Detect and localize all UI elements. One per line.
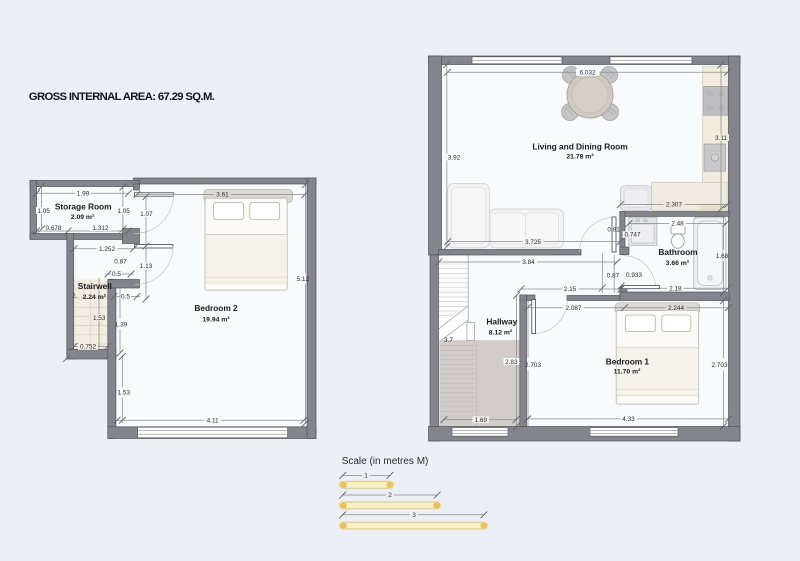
- svg-text:Storage Room: Storage Room: [55, 202, 112, 212]
- svg-text:0.5: 0.5: [112, 271, 121, 278]
- svg-text:Hallway: Hallway: [486, 317, 517, 327]
- svg-text:Bedroom 2: Bedroom 2: [194, 303, 238, 313]
- svg-text:4.33: 4.33: [622, 416, 635, 423]
- svg-text:19.94 m²: 19.94 m²: [202, 316, 230, 323]
- svg-text:0.752: 0.752: [80, 344, 96, 351]
- svg-text:0.81: 0.81: [607, 227, 620, 234]
- svg-text:0.678: 0.678: [46, 225, 62, 232]
- svg-text:1.312: 1.312: [93, 225, 109, 232]
- svg-text:1.07: 1.07: [140, 211, 153, 218]
- svg-text:2.: 2.: [72, 293, 78, 300]
- svg-text:0.5: 0.5: [121, 294, 130, 301]
- svg-text:11.70 m²: 11.70 m²: [614, 369, 642, 376]
- svg-text:4.11: 4.11: [207, 418, 219, 425]
- svg-text:1.39: 1.39: [115, 321, 128, 328]
- svg-text:8.12 m²: 8.12 m²: [489, 330, 513, 337]
- svg-text:1.99: 1.99: [77, 191, 90, 198]
- svg-text:2.83: 2.83: [505, 359, 518, 366]
- svg-text:Stairwell: Stairwell: [78, 281, 112, 291]
- svg-text:2.09 m²: 2.09 m²: [71, 214, 95, 221]
- svg-text:3.7: 3.7: [444, 337, 453, 344]
- svg-text:0.87: 0.87: [114, 258, 127, 265]
- svg-text:1.53: 1.53: [118, 389, 131, 396]
- svg-text:3.725: 3.725: [525, 239, 541, 246]
- svg-text:2.48: 2.48: [671, 221, 684, 228]
- svg-text:2.15: 2.15: [564, 286, 577, 293]
- svg-text:3.61: 3.61: [216, 192, 229, 199]
- svg-text:2.703: 2.703: [712, 362, 728, 369]
- svg-text:2.087: 2.087: [566, 305, 582, 312]
- svg-text:Bedroom 1: Bedroom 1: [606, 357, 650, 367]
- svg-text:5.12: 5.12: [297, 276, 310, 283]
- svg-text:Bathroom: Bathroom: [658, 247, 697, 257]
- svg-text:2.244: 2.244: [668, 305, 684, 312]
- svg-text:3.92: 3.92: [448, 155, 461, 162]
- svg-text:1.05: 1.05: [37, 208, 50, 215]
- svg-text:1.13: 1.13: [140, 263, 153, 270]
- svg-text:1.68: 1.68: [716, 253, 729, 260]
- svg-text:1.53: 1.53: [93, 315, 106, 322]
- svg-text:Scale (in metres M): Scale (in metres M): [342, 456, 429, 467]
- svg-text:2.307: 2.307: [666, 202, 682, 209]
- svg-text:1.252: 1.252: [99, 246, 115, 253]
- svg-text:0.747: 0.747: [625, 232, 641, 239]
- svg-text:2: 2: [388, 492, 392, 499]
- svg-text:3: 3: [412, 512, 416, 519]
- svg-text:0.87: 0.87: [607, 272, 620, 279]
- svg-text:2.24 m²: 2.24 m²: [83, 294, 107, 301]
- svg-text:6.032: 6.032: [580, 70, 596, 77]
- svg-text:3.66 m²: 3.66 m²: [666, 260, 690, 267]
- svg-text:3.84: 3.84: [522, 259, 535, 266]
- svg-text:1.05: 1.05: [117, 208, 130, 215]
- svg-text:2.703: 2.703: [525, 362, 541, 369]
- svg-text:GROSS INTERNAL AREA: 67.29 SQ.: GROSS INTERNAL AREA: 67.29 SQ.M.: [29, 91, 215, 103]
- svg-text:0.933: 0.933: [626, 272, 642, 279]
- svg-text:1.69: 1.69: [475, 417, 488, 424]
- svg-text:1: 1: [364, 473, 368, 480]
- svg-text:Living and Dining Room: Living and Dining Room: [532, 141, 627, 151]
- svg-text:21.78 m²: 21.78 m²: [566, 154, 594, 161]
- svg-text:3.11: 3.11: [715, 135, 727, 142]
- svg-text:2.18: 2.18: [669, 285, 682, 292]
